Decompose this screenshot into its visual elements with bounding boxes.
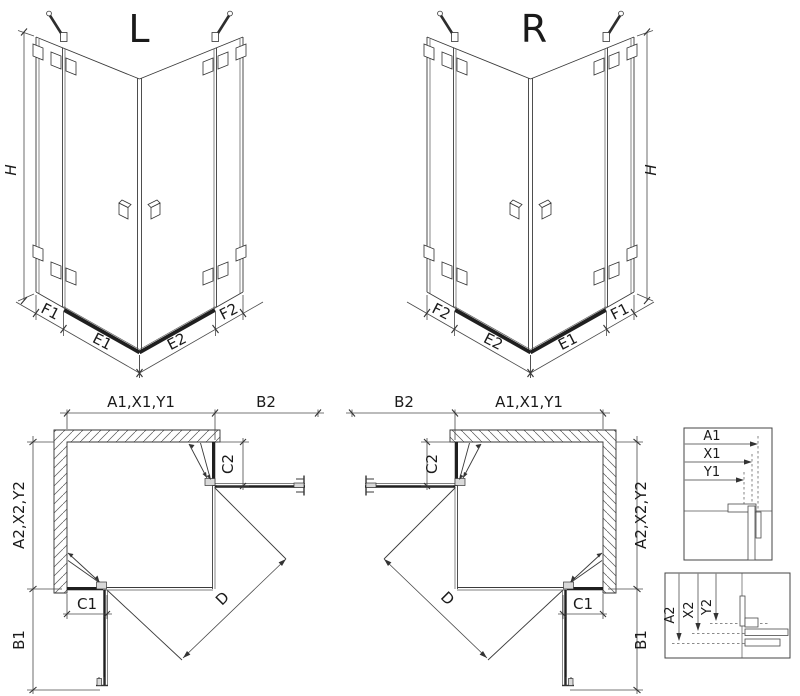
technical-drawing: L H F1 E1 E2 F2 R H F2 E2 E1 F1 A1,X1,Y1…: [0, 0, 800, 696]
dim-label-b2-plan-left: B2: [256, 393, 276, 411]
dim-label-f1-left: F1: [38, 299, 62, 323]
plan-view-right: B2 A1,X1,Y1 C2 A2,X2,Y2 B1 C1 D: [346, 393, 650, 694]
dim-label-a2-plan-left: A2,X2,Y2: [10, 481, 28, 549]
dim-label-a1-detail: A1: [703, 429, 720, 444]
dim-label-d-plan-right: D: [437, 588, 458, 609]
dim-label-h-left: H: [2, 164, 20, 175]
dim-label-b2-plan-right: B2: [394, 393, 414, 411]
axo-view-left: L H F1 E1 E2 F2: [2, 7, 263, 378]
dim-label-e2-right: E2: [481, 329, 506, 354]
dim-label-a1-plan-right: A1,X1,Y1: [495, 393, 563, 411]
axo-right-title: R: [521, 7, 547, 51]
dim-label-x1-detail: X1: [703, 447, 720, 462]
drawing-page: L H F1 E1 E2 F2 R H F2 E2 E1 F1 A1,X1,Y1…: [0, 0, 800, 696]
dim-label-e1-left: E1: [90, 329, 115, 354]
dim-label-d-plan-left: D: [212, 588, 233, 609]
dim-label-y1-detail: Y1: [703, 465, 720, 480]
detail-box-depths: A2 X2 Y2: [663, 573, 790, 658]
dim-label-e1-right: E1: [555, 329, 580, 354]
axo-view-right: R H F2 E2 E1 F1: [407, 7, 660, 378]
dim-label-c1-plan-right: C1: [573, 595, 593, 613]
dim-label-e2-left: E2: [164, 329, 189, 354]
dim-label-y2-detail: Y2: [700, 599, 715, 616]
dim-label-c2-plan-left: C2: [219, 454, 237, 474]
dim-label-a2-detail: A2: [663, 606, 678, 623]
detail-box-widths: A1 X1 Y1: [684, 428, 772, 560]
dim-label-h-right: H: [642, 164, 660, 175]
dim-label-a2-plan-right: A2,X2,Y2: [632, 481, 650, 549]
dim-label-a1-plan-left: A1,X1,Y1: [107, 393, 175, 411]
axo-left-title: L: [128, 7, 149, 51]
dim-label-b1-plan-left: B1: [10, 630, 28, 650]
dim-label-c1-plan-left: C1: [77, 595, 97, 613]
dim-label-f2-left: F2: [217, 299, 241, 323]
dim-label-f1-right: F1: [608, 299, 632, 323]
dim-label-c2-plan-right: C2: [423, 454, 441, 474]
dim-label-b1-plan-right: B1: [632, 630, 650, 650]
dim-label-x2-detail: X2: [682, 601, 697, 618]
plan-view-left: A1,X1,Y1 B2 C2 A2,X2,Y2 B1 C1 D: [10, 393, 324, 694]
dim-label-f2-right: F2: [429, 299, 453, 323]
